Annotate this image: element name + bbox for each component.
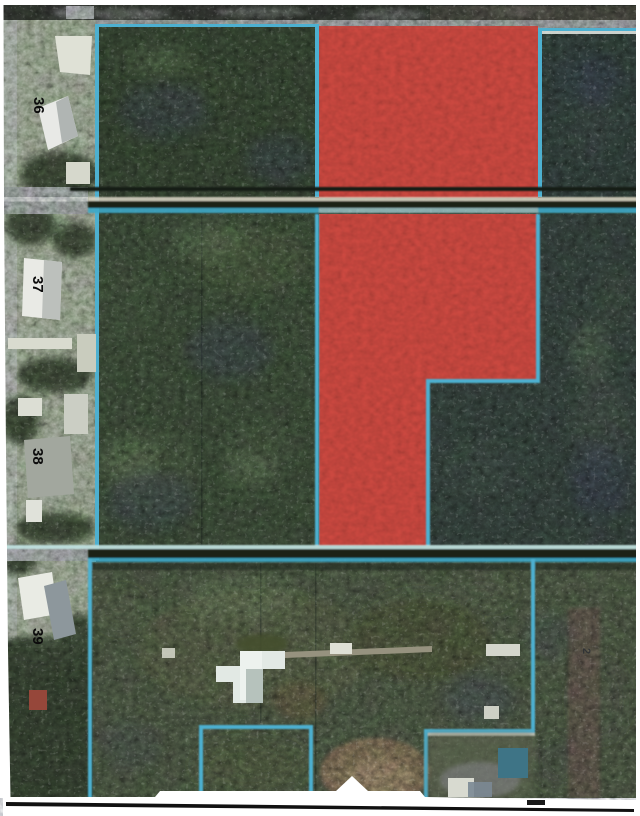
svg-text:2: 2: [580, 648, 592, 654]
svg-text:36: 36: [30, 97, 47, 114]
svg-text:39: 39: [29, 628, 46, 645]
svg-text:37: 37: [29, 276, 46, 293]
svg-text:38: 38: [29, 448, 46, 465]
